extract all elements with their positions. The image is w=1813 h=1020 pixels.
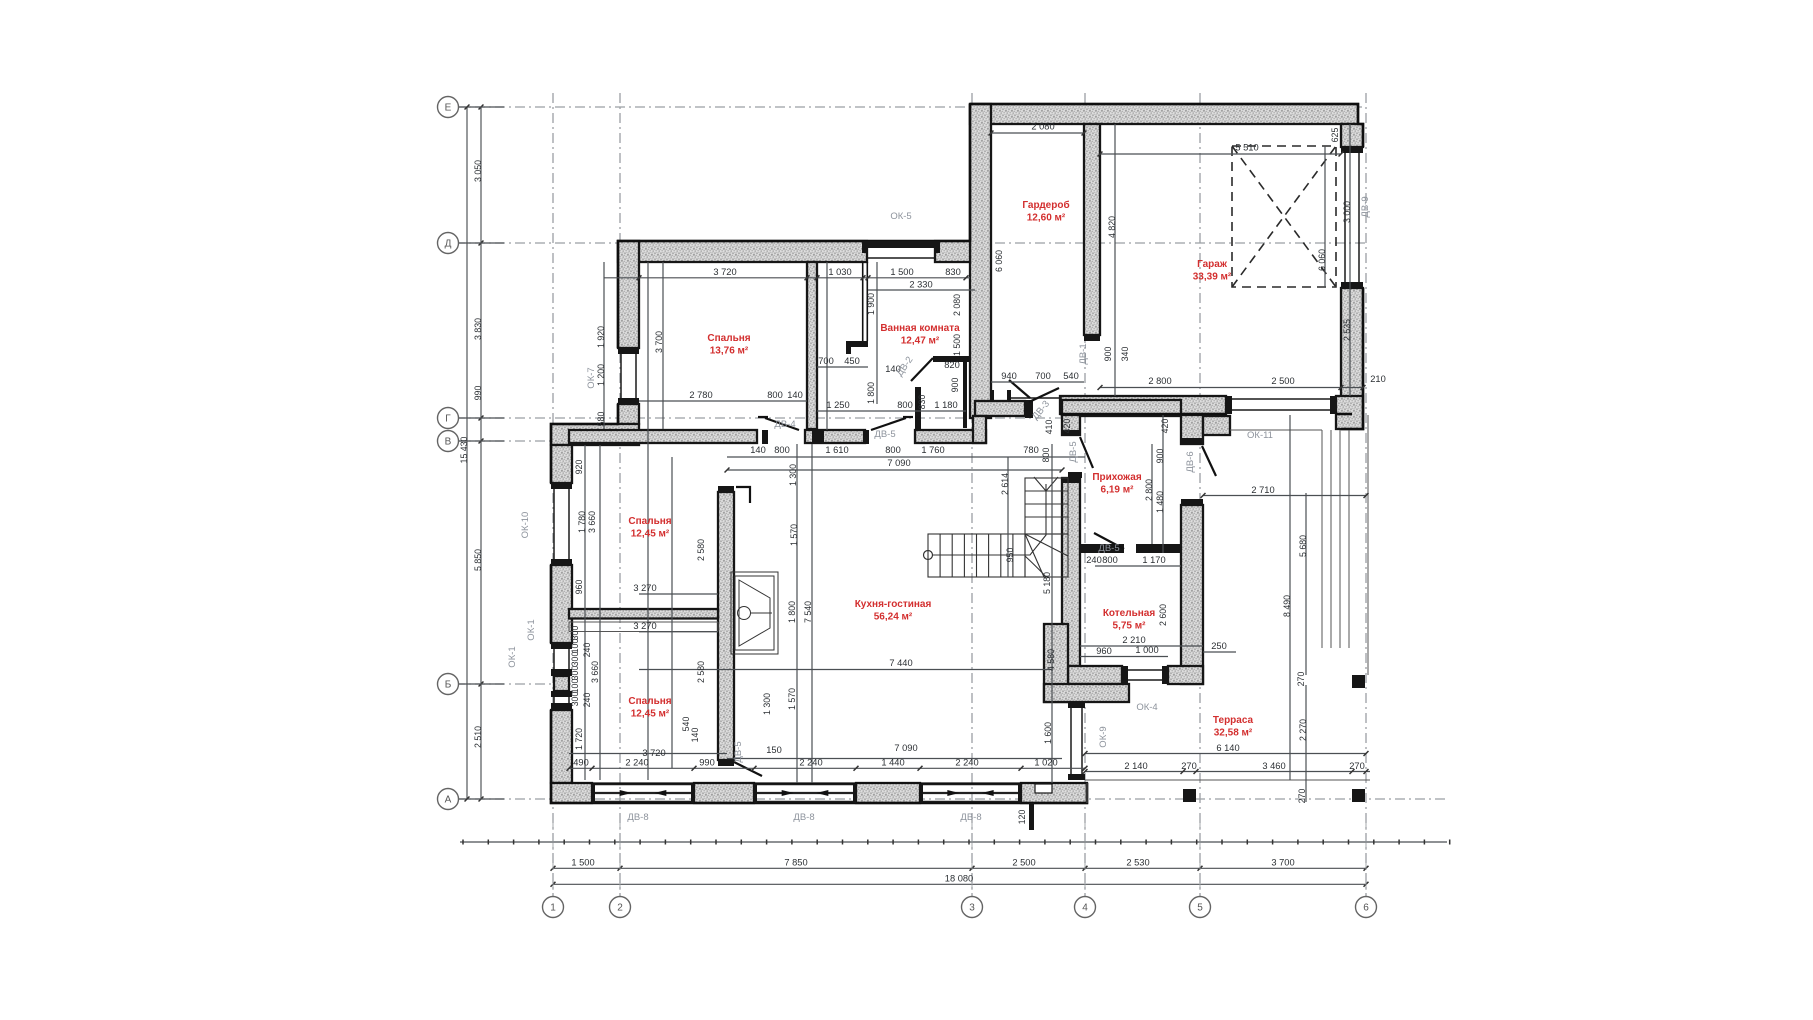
- svg-text:Гараж: Гараж: [1197, 259, 1228, 270]
- svg-text:2 240: 2 240: [955, 758, 978, 768]
- svg-text:2 580: 2 580: [696, 539, 706, 561]
- svg-text:ДВ-5: ДВ-5: [874, 429, 895, 440]
- svg-text:960: 960: [574, 580, 584, 595]
- svg-text:2 530: 2 530: [1126, 858, 1149, 868]
- svg-text:625: 625: [1330, 128, 1340, 143]
- svg-text:В: В: [445, 437, 452, 448]
- svg-text:780: 780: [1023, 445, 1039, 455]
- svg-text:ДВ-5: ДВ-5: [733, 741, 744, 762]
- svg-text:6 060: 6 060: [1317, 249, 1327, 271]
- svg-text:ОК-1: ОК-1: [507, 646, 518, 667]
- svg-text:12,45 м²: 12,45 м²: [631, 528, 670, 539]
- svg-text:2 580: 2 580: [696, 661, 706, 683]
- svg-text:900: 900: [950, 378, 960, 393]
- svg-text:270: 270: [1297, 789, 1307, 804]
- svg-text:33,39 м²: 33,39 м²: [1193, 271, 1232, 282]
- svg-text:2 240: 2 240: [625, 758, 648, 768]
- svg-text:2 800: 2 800: [1148, 376, 1171, 386]
- svg-text:2 780: 2 780: [689, 390, 712, 400]
- svg-text:Спальня: Спальня: [628, 696, 671, 707]
- svg-text:490: 490: [573, 758, 589, 768]
- svg-text:990: 990: [699, 758, 715, 768]
- svg-text:2 800: 2 800: [1144, 479, 1154, 501]
- svg-text:6,19 м²: 6,19 м²: [1101, 484, 1135, 495]
- svg-text:300: 300: [570, 652, 580, 667]
- svg-text:300: 300: [570, 666, 580, 681]
- svg-text:1 760: 1 760: [921, 445, 944, 455]
- svg-text:900: 900: [1103, 347, 1113, 362]
- svg-text:ОК-11: ОК-11: [1247, 430, 1273, 441]
- svg-text:5 850: 5 850: [473, 549, 483, 571]
- svg-text:18 080: 18 080: [945, 874, 973, 884]
- svg-text:1 020: 1 020: [1034, 758, 1057, 768]
- svg-text:120: 120: [1017, 810, 1027, 825]
- svg-text:3 460: 3 460: [1262, 761, 1285, 771]
- svg-text:300: 300: [570, 692, 580, 707]
- svg-text:Спальня: Спальня: [628, 516, 671, 527]
- svg-text:5,75 м²: 5,75 м²: [1113, 620, 1147, 631]
- svg-text:830: 830: [945, 267, 961, 277]
- svg-text:ДВ-6: ДВ-6: [1185, 451, 1196, 472]
- svg-text:1 720: 1 720: [574, 728, 584, 750]
- svg-text:240: 240: [1086, 555, 1102, 565]
- svg-text:940: 940: [1001, 371, 1017, 381]
- svg-text:ОК-5: ОК-5: [890, 211, 911, 222]
- svg-text:1 610: 1 610: [825, 445, 848, 455]
- svg-text:150: 150: [766, 745, 782, 755]
- svg-text:4 580: 4 580: [1046, 649, 1056, 671]
- svg-text:А: А: [445, 795, 452, 806]
- svg-text:800: 800: [774, 445, 790, 455]
- svg-text:1 030: 1 030: [828, 267, 851, 277]
- svg-text:ОК-9: ОК-9: [1098, 726, 1109, 747]
- svg-text:3 830: 3 830: [473, 318, 483, 340]
- svg-text:ДВ-5: ДВ-5: [1098, 543, 1119, 554]
- svg-text:3 700: 3 700: [1271, 858, 1294, 868]
- svg-text:270: 270: [1296, 672, 1306, 687]
- svg-text:240: 240: [582, 693, 592, 708]
- svg-text:800: 800: [897, 400, 913, 410]
- svg-text:32,58 м²: 32,58 м²: [1214, 727, 1253, 738]
- svg-text:2 080: 2 080: [1031, 122, 1054, 132]
- svg-text:1 250: 1 250: [826, 400, 849, 410]
- svg-text:800: 800: [885, 445, 901, 455]
- svg-text:3 720: 3 720: [642, 748, 665, 758]
- svg-text:1 300: 1 300: [788, 464, 798, 486]
- svg-text:ОК-1: ОК-1: [526, 619, 537, 640]
- svg-text:ДВ-8: ДВ-8: [960, 812, 981, 823]
- svg-text:990: 990: [473, 386, 483, 401]
- svg-text:ОК-4: ОК-4: [1136, 702, 1157, 713]
- svg-text:100: 100: [570, 639, 580, 654]
- svg-text:Е: Е: [445, 103, 452, 114]
- svg-text:1 570: 1 570: [789, 524, 799, 546]
- svg-text:2 500: 2 500: [1012, 858, 1035, 868]
- svg-text:1 500: 1 500: [890, 267, 913, 277]
- svg-text:Котельная: Котельная: [1103, 608, 1156, 619]
- svg-text:5: 5: [1197, 903, 1203, 914]
- svg-text:2 710: 2 710: [1251, 485, 1274, 495]
- svg-text:3 270: 3 270: [633, 621, 656, 631]
- svg-text:ДВ-4: ДВ-4: [774, 419, 795, 430]
- svg-text:1 480: 1 480: [1155, 491, 1165, 513]
- svg-text:3 270: 3 270: [633, 583, 656, 593]
- svg-text:56,24 м²: 56,24 м²: [874, 611, 913, 622]
- svg-text:300: 300: [570, 626, 580, 641]
- svg-text:900: 900: [1155, 449, 1165, 464]
- svg-text:270: 270: [1349, 761, 1365, 771]
- svg-text:ДВ-8: ДВ-8: [793, 812, 814, 823]
- svg-text:Прихожая: Прихожая: [1092, 472, 1142, 483]
- svg-text:7 540: 7 540: [803, 601, 813, 623]
- svg-text:1 180: 1 180: [934, 400, 957, 410]
- svg-text:Б: Б: [445, 680, 452, 691]
- svg-text:8 490: 8 490: [1282, 595, 1292, 617]
- svg-text:1 780: 1 780: [577, 511, 587, 533]
- svg-text:3 660: 3 660: [590, 661, 600, 683]
- svg-text:2 500: 2 500: [1271, 376, 1294, 386]
- svg-text:1 920: 1 920: [596, 326, 606, 348]
- svg-text:ДВ-1: ДВ-1: [1078, 343, 1089, 364]
- svg-text:2 080: 2 080: [952, 294, 962, 316]
- svg-text:Д: Д: [445, 239, 452, 250]
- svg-text:140: 140: [787, 390, 803, 400]
- svg-text:540: 540: [1063, 371, 1079, 381]
- svg-text:12,60 м²: 12,60 м²: [1027, 212, 1066, 223]
- svg-text:800: 800: [1102, 555, 1118, 565]
- svg-text:ДВ-5: ДВ-5: [1068, 441, 1079, 462]
- svg-text:3 050: 3 050: [473, 160, 483, 182]
- svg-text:2: 2: [617, 903, 623, 914]
- svg-text:5 180: 5 180: [1042, 572, 1052, 594]
- svg-text:250: 250: [1211, 641, 1227, 651]
- svg-text:4 820: 4 820: [1107, 216, 1117, 238]
- svg-text:1 000: 1 000: [1135, 645, 1158, 655]
- svg-text:6 140: 6 140: [1216, 743, 1239, 753]
- svg-text:ОК-7: ОК-7: [586, 367, 597, 388]
- svg-text:3 660: 3 660: [587, 511, 597, 533]
- svg-text:3 000: 3 000: [1342, 201, 1352, 223]
- svg-text:7 090: 7 090: [887, 458, 910, 468]
- svg-text:140: 140: [690, 728, 700, 743]
- svg-text:6 060: 6 060: [994, 250, 1004, 272]
- svg-text:420: 420: [1160, 419, 1170, 434]
- svg-text:700: 700: [818, 356, 834, 366]
- svg-text:15 430: 15 430: [459, 436, 469, 463]
- svg-text:2 210: 2 210: [1122, 635, 1145, 645]
- svg-text:1 800: 1 800: [866, 382, 876, 404]
- svg-text:960: 960: [1096, 646, 1112, 656]
- svg-text:1 800: 1 800: [787, 601, 797, 623]
- svg-text:2 510: 2 510: [473, 726, 483, 748]
- svg-text:410: 410: [1044, 420, 1054, 435]
- svg-text:950: 950: [1005, 548, 1015, 563]
- svg-text:1 600: 1 600: [1043, 722, 1053, 744]
- svg-text:830: 830: [917, 395, 927, 410]
- svg-text:Спальня: Спальня: [707, 333, 750, 344]
- svg-text:140: 140: [750, 445, 766, 455]
- svg-text:270: 270: [1181, 761, 1197, 771]
- svg-text:2 330: 2 330: [909, 280, 932, 290]
- svg-text:ДВ-9: ДВ-9: [1360, 196, 1371, 217]
- svg-text:450: 450: [844, 356, 860, 366]
- svg-text:800: 800: [1041, 448, 1051, 463]
- svg-text:7 850: 7 850: [784, 858, 807, 868]
- svg-text:2 270: 2 270: [1298, 719, 1308, 741]
- svg-text:1 440: 1 440: [881, 758, 904, 768]
- svg-text:12,45 м²: 12,45 м²: [631, 708, 670, 719]
- svg-text:1 500: 1 500: [571, 858, 594, 868]
- svg-text:920: 920: [574, 460, 584, 475]
- svg-text:1 570: 1 570: [787, 688, 797, 710]
- svg-text:1: 1: [550, 903, 556, 914]
- svg-text:5 680: 5 680: [1298, 535, 1308, 557]
- svg-text:420: 420: [1062, 419, 1072, 434]
- svg-text:5 510: 5 510: [1235, 143, 1258, 153]
- svg-text:1 170: 1 170: [1142, 555, 1165, 565]
- svg-text:3: 3: [969, 903, 975, 914]
- svg-text:2 240: 2 240: [799, 758, 822, 768]
- svg-text:Г: Г: [445, 414, 451, 425]
- svg-text:ОК-10: ОК-10: [520, 512, 531, 539]
- svg-text:Кухня-гостиная: Кухня-гостиная: [855, 599, 932, 610]
- svg-text:12,47 м²: 12,47 м²: [901, 335, 940, 346]
- svg-text:820: 820: [944, 360, 960, 370]
- svg-text:13,76 м²: 13,76 м²: [710, 345, 749, 356]
- svg-text:7 440: 7 440: [889, 658, 912, 668]
- svg-text:Ванная комната: Ванная комната: [880, 323, 960, 334]
- svg-text:Гардероб: Гардероб: [1022, 199, 1069, 211]
- svg-text:3 700: 3 700: [654, 331, 664, 353]
- svg-text:1 500: 1 500: [952, 334, 962, 356]
- svg-text:580: 580: [596, 412, 606, 427]
- svg-text:ДВ-8: ДВ-8: [627, 812, 648, 823]
- svg-text:6: 6: [1363, 903, 1369, 914]
- svg-text:4: 4: [1082, 903, 1088, 914]
- svg-text:100: 100: [570, 679, 580, 694]
- svg-text:Терраса: Терраса: [1213, 715, 1254, 726]
- svg-text:7 090: 7 090: [894, 743, 917, 753]
- svg-text:340: 340: [1120, 347, 1130, 362]
- svg-text:1 900: 1 900: [866, 293, 876, 315]
- svg-text:2 600: 2 600: [1158, 604, 1168, 626]
- svg-text:2 140: 2 140: [1124, 761, 1147, 771]
- svg-text:210: 210: [1370, 374, 1386, 384]
- svg-text:800: 800: [767, 390, 783, 400]
- svg-text:2 614: 2 614: [1000, 473, 1010, 495]
- svg-text:1 300: 1 300: [762, 693, 772, 715]
- svg-text:1 200: 1 200: [596, 364, 606, 386]
- svg-text:3 720: 3 720: [713, 267, 736, 277]
- svg-text:2 535: 2 535: [1342, 319, 1352, 341]
- svg-text:700: 700: [1035, 371, 1051, 381]
- svg-text:240: 240: [582, 643, 592, 658]
